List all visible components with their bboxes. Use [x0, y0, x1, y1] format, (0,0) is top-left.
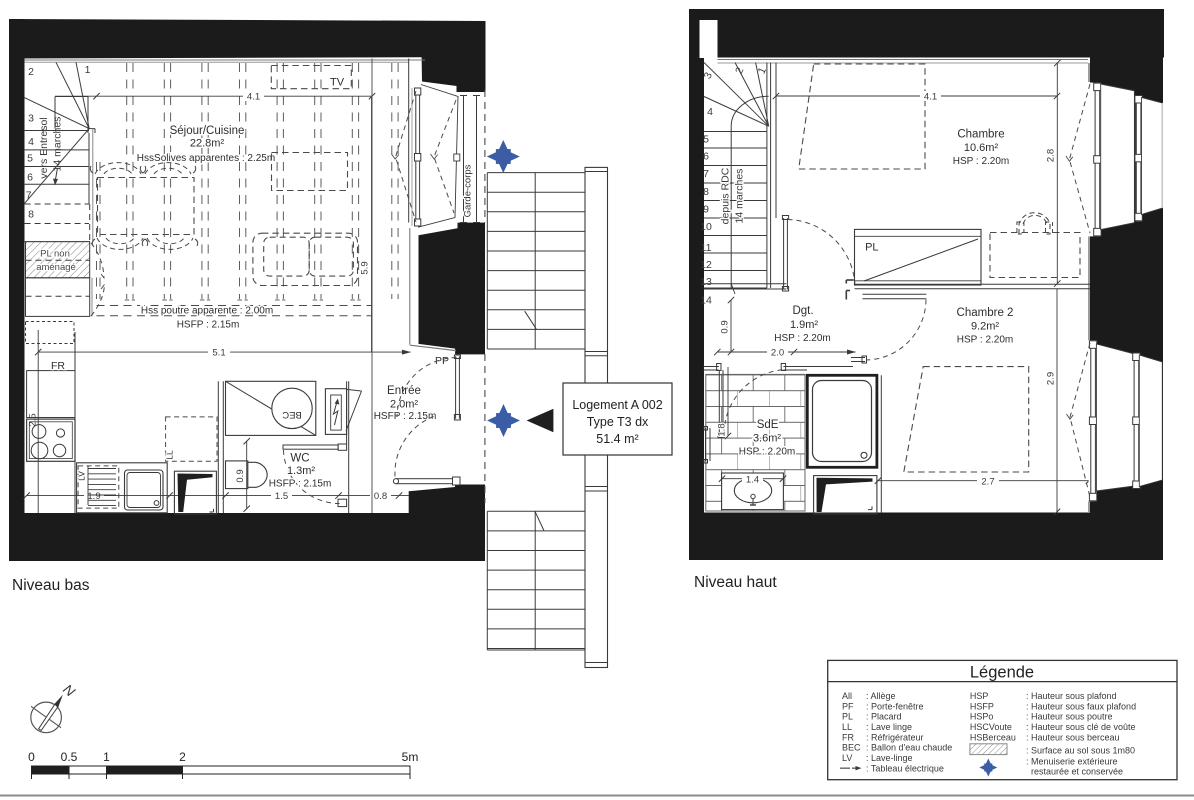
- svg-text:restaurée et conservée: restaurée et conservée: [1031, 767, 1123, 777]
- svg-text:: Hauteur sous plafond: : Hauteur sous plafond: [1026, 691, 1117, 701]
- svg-text:BEC: BEC: [282, 409, 302, 420]
- svg-text:3.6m²: 3.6m²: [753, 433, 781, 445]
- svg-text:6: 6: [703, 151, 709, 163]
- svg-text:HSFP : 2.15m: HSFP : 2.15m: [269, 479, 332, 490]
- svg-text:: Surface au sol sous 1m80: : Surface au sol sous 1m80: [1026, 745, 1135, 755]
- svg-text:Entrée: Entrée: [387, 385, 421, 397]
- svg-text:1.3m²: 1.3m²: [287, 465, 315, 477]
- svg-text:: Allège: : Allège: [866, 691, 896, 701]
- svg-text:2.7: 2.7: [981, 476, 994, 487]
- svg-text:TV: TV: [330, 77, 345, 89]
- svg-text:2: 2: [28, 66, 34, 78]
- svg-text:LL: LL: [842, 722, 852, 732]
- svg-text:0.9: 0.9: [720, 320, 731, 333]
- svg-text:SdE: SdE: [757, 419, 779, 431]
- svg-text:14 marches: 14 marches: [52, 117, 64, 172]
- svg-text:Chambre: Chambre: [957, 129, 1004, 141]
- svg-text:depuis RDC: depuis RDC: [720, 167, 732, 224]
- svg-text:HSBerceau: HSBerceau: [970, 732, 1016, 742]
- svg-text:1: 1: [85, 64, 91, 76]
- svg-text:4: 4: [707, 106, 713, 118]
- svg-text:HSP : 2.20m: HSP : 2.20m: [774, 333, 831, 344]
- svg-text:14: 14: [700, 295, 712, 307]
- svg-text:: Ballon d'eau chaude: : Ballon d'eau chaude: [866, 743, 952, 753]
- svg-text:HSFP : 2.15m: HSFP : 2.15m: [177, 320, 240, 331]
- svg-text:LL: LL: [165, 450, 175, 460]
- svg-text:: Hauteur sous faux plafond: : Hauteur sous faux plafond: [1026, 701, 1136, 711]
- svg-text:HSCVoute: HSCVoute: [970, 722, 1012, 732]
- svg-text:: Menuiserie extérieure: : Menuiserie extérieure: [1026, 756, 1118, 766]
- svg-text:2.0: 2.0: [771, 348, 784, 359]
- svg-text:10.6m²: 10.6m²: [964, 142, 999, 154]
- svg-text:HSPo: HSPo: [970, 712, 994, 722]
- svg-text:Dgt.: Dgt.: [792, 305, 813, 317]
- svg-text:vers Entresol: vers Entresol: [38, 117, 50, 178]
- svg-text:13: 13: [700, 276, 712, 288]
- svg-text:11: 11: [701, 242, 712, 254]
- svg-text:HssSolives apparentes : 2.25m: HssSolives apparentes : 2.25m: [137, 153, 275, 164]
- svg-text:Niveau haut: Niveau haut: [694, 574, 777, 591]
- svg-text:0: 0: [28, 750, 35, 764]
- svg-text:HSP : 2.20m: HSP : 2.20m: [957, 335, 1014, 346]
- svg-text:HSP : 2.20m: HSP : 2.20m: [739, 447, 796, 458]
- svg-text:All: All: [842, 691, 852, 701]
- svg-text:12: 12: [700, 259, 712, 271]
- svg-text:: Lave-linge: : Lave-linge: [866, 753, 913, 763]
- svg-text:Garde-corps: Garde-corps: [462, 164, 473, 217]
- svg-text:6: 6: [27, 172, 33, 184]
- svg-text:Légende: Légende: [970, 664, 1034, 682]
- svg-text:9.2m²: 9.2m²: [971, 321, 999, 333]
- svg-text:LV: LV: [842, 753, 852, 763]
- svg-text:WC: WC: [290, 453, 309, 465]
- svg-text:1.8: 1.8: [717, 423, 728, 436]
- svg-text:1.9m²: 1.9m²: [790, 319, 818, 331]
- svg-text:5.9: 5.9: [360, 261, 371, 274]
- svg-text:22.8m²: 22.8m²: [190, 138, 225, 150]
- svg-text:: Hauteur sous poutre: : Hauteur sous poutre: [1026, 712, 1113, 722]
- svg-text:4.1: 4.1: [247, 92, 260, 103]
- svg-text:: Placard: : Placard: [866, 712, 902, 722]
- svg-text:3: 3: [28, 113, 34, 125]
- svg-text:LV: LV: [77, 471, 87, 481]
- svg-text:FR: FR: [51, 360, 65, 372]
- svg-text:PL non: PL non: [40, 249, 70, 260]
- svg-text:8: 8: [28, 209, 34, 221]
- svg-text:2.9: 2.9: [1046, 372, 1057, 385]
- svg-text:4.1: 4.1: [924, 92, 937, 103]
- svg-text:HSFP: HSFP: [970, 701, 994, 711]
- svg-text:7: 7: [26, 190, 32, 202]
- svg-text:Hss poutre apparente : 2.00m: Hss poutre apparente : 2.00m: [141, 306, 273, 317]
- svg-text:5.1: 5.1: [212, 348, 225, 359]
- svg-text:: Lave linge: : Lave linge: [866, 722, 912, 732]
- svg-text:N: N: [60, 681, 79, 700]
- svg-text:2: 2: [179, 750, 186, 764]
- svg-text:1.4: 1.4: [746, 474, 759, 485]
- svg-text:Logement A 002: Logement A 002: [572, 398, 662, 412]
- svg-text:PL: PL: [842, 712, 853, 722]
- svg-text:PL: PL: [865, 242, 878, 254]
- svg-text:5: 5: [703, 134, 709, 146]
- svg-text:Type T3 dx: Type T3 dx: [587, 415, 649, 429]
- svg-text:51.4 m²: 51.4 m²: [596, 432, 638, 446]
- svg-text:14 marches: 14 marches: [734, 169, 746, 224]
- svg-text:5m: 5m: [402, 750, 419, 764]
- svg-text:: Réfrigérateur: : Réfrigérateur: [866, 732, 924, 742]
- svg-text:1.5: 1.5: [275, 491, 288, 502]
- svg-text:Séjour/Cuisine: Séjour/Cuisine: [170, 125, 245, 137]
- svg-text:HSFP : 2.15m: HSFP : 2.15m: [374, 411, 437, 422]
- svg-text:PF: PF: [842, 701, 854, 711]
- svg-text:2.0m²: 2.0m²: [390, 399, 418, 411]
- svg-text:2: 2: [733, 65, 746, 76]
- svg-text:4: 4: [28, 136, 34, 148]
- svg-text:5: 5: [27, 153, 33, 165]
- svg-text:0.9: 0.9: [235, 469, 246, 482]
- svg-text:1: 1: [103, 750, 110, 764]
- svg-text:HSP: HSP: [970, 691, 989, 701]
- svg-text:: Hauteur sous clé de voûte: : Hauteur sous clé de voûte: [1026, 722, 1136, 732]
- svg-text:HSP : 2.20m: HSP : 2.20m: [953, 156, 1010, 167]
- svg-text:8: 8: [703, 186, 709, 198]
- svg-text:BEC: BEC: [842, 743, 861, 753]
- svg-text:: Tableau électrique: : Tableau électrique: [866, 763, 944, 773]
- svg-text:: Hauteur sous berceau: : Hauteur sous berceau: [1026, 732, 1120, 742]
- svg-text:10: 10: [700, 221, 712, 233]
- svg-text:9: 9: [703, 204, 709, 216]
- svg-text:aménagé: aménagé: [36, 262, 76, 273]
- svg-text:2.8: 2.8: [1046, 149, 1057, 162]
- svg-text:: Porte-fenêtre: : Porte-fenêtre: [866, 701, 924, 711]
- svg-text:7: 7: [703, 168, 709, 180]
- svg-text:0.8: 0.8: [374, 491, 387, 502]
- svg-text:Chambre 2: Chambre 2: [957, 307, 1014, 319]
- svg-text:FR: FR: [842, 732, 854, 742]
- svg-text:Niveau bas: Niveau bas: [12, 577, 90, 594]
- svg-text:0.5: 0.5: [61, 750, 78, 764]
